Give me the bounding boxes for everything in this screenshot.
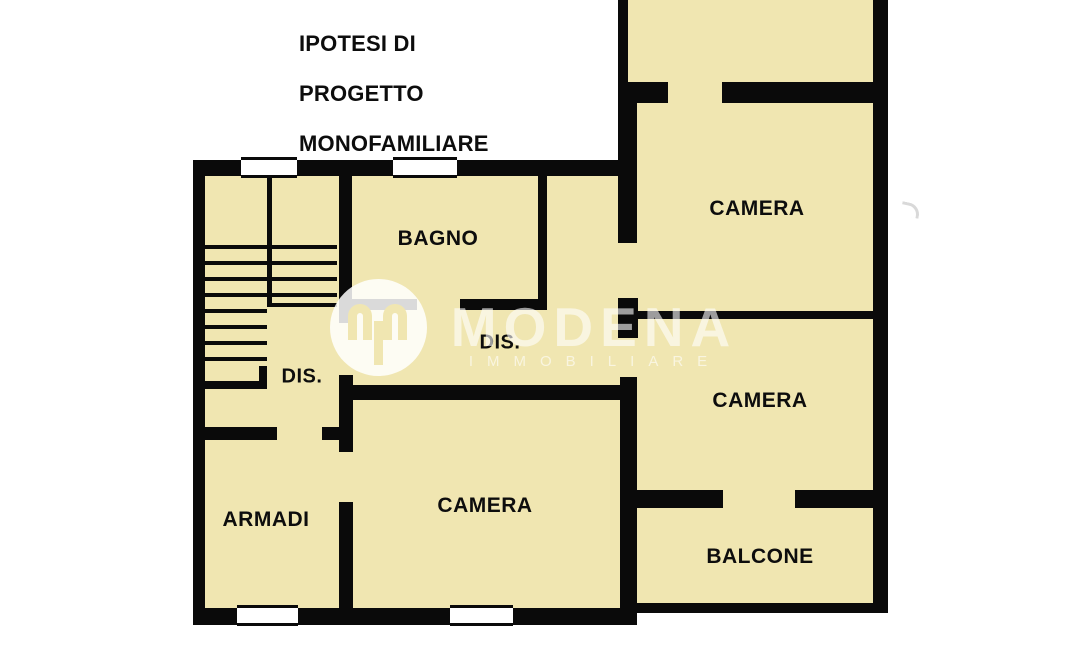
wall-top-room-bottom (618, 82, 668, 103)
stair-step (205, 261, 267, 265)
wall-outer-top (457, 160, 623, 176)
wall-balcone-bottom (620, 603, 888, 613)
room-label-bagno: BAGNO (398, 227, 479, 251)
stair-step (272, 277, 337, 281)
stair-step (205, 293, 267, 297)
plan-title: IPOTESI DI PROGETTO MONOFAMILIARE (299, 6, 489, 181)
stair-step (205, 245, 267, 249)
wall-camera-mid-left (620, 377, 637, 612)
wall-outer-bottom (513, 608, 637, 625)
window-top-2 (393, 157, 457, 178)
stair-step (272, 261, 337, 265)
logo-arch-right (383, 304, 407, 340)
room-label-camera-bottom: CAMERA (437, 494, 532, 518)
stair-step (205, 341, 267, 345)
stair-step (205, 325, 267, 329)
wall-top-room-bottom (722, 82, 873, 103)
wall-armadi-top (193, 427, 277, 440)
wall-right-block-left (618, 82, 637, 243)
wall-armadi-top (322, 427, 353, 440)
room-label-dis-landing: DIS. (282, 366, 323, 389)
room-label-camera-top: CAMERA (709, 197, 804, 221)
floor-plan: IPOTESI DI PROGETTO MONOFAMILIARE (0, 0, 1078, 648)
wall-outer-left (193, 160, 205, 625)
room-label-armadi: ARMADI (223, 508, 310, 532)
watermark-brand-text: MODENA (424, 299, 764, 355)
wall-outer-top (193, 160, 241, 176)
window-top-1 (241, 157, 297, 178)
stair-step (272, 245, 337, 249)
wall-corridor-bottom (339, 385, 630, 400)
wall-right-block-left-upper (618, 0, 628, 92)
wall-outer-bottom (193, 608, 237, 625)
stair-step (205, 309, 267, 313)
room-label-balcone: BALCONE (706, 545, 813, 569)
wall-balcone-top (637, 490, 723, 508)
plan-title-line3: MONOFAMILIARE (299, 131, 489, 156)
wall-outer-top (297, 160, 393, 176)
stair-step (205, 357, 267, 361)
room-label-camera-mid: CAMERA (712, 389, 807, 413)
watermark-logo-circle (330, 279, 427, 376)
logo-arch-left (348, 304, 372, 340)
stair-step (205, 277, 267, 281)
plan-title-line2: PROGETTO (299, 81, 489, 106)
watermark-subtitle-text: IMMOBILIARE (430, 352, 760, 372)
stair-step (272, 303, 337, 307)
stair-landing-edge (205, 381, 267, 389)
wall-balcone-top (795, 490, 873, 508)
window-bottom-2 (450, 605, 513, 626)
wall-bagno-right (538, 176, 547, 309)
stair-center-line (267, 176, 272, 307)
scan-artifact (900, 201, 921, 219)
plan-title-line1: IPOTESI DI (299, 31, 489, 56)
wall-outer-bottom (298, 608, 450, 625)
wall-camera-bottom-left (339, 502, 353, 608)
window-bottom-1 (237, 605, 298, 626)
stair-step (272, 293, 337, 297)
wall-outer-right (873, 0, 888, 613)
logo-stem (374, 321, 383, 365)
